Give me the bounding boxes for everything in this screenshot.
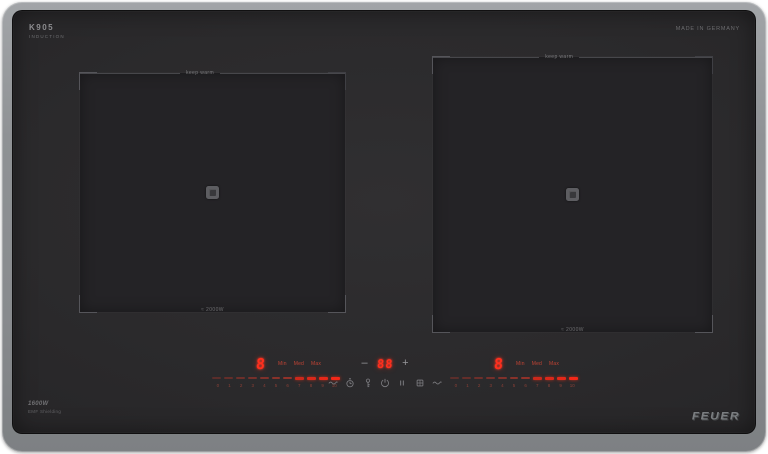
power-level-1[interactable]: 1 [462, 383, 474, 388]
cooktop-product-image: K905 INDUCTION MADE IN GERMANY keep warm… [0, 0, 768, 454]
zone-top-guide: keep warm [80, 70, 345, 76]
power-dash-7 [533, 377, 542, 380]
power-slider-touch-scale[interactable]: 012345678910 [450, 383, 578, 388]
power-level-5[interactable]: 5 [508, 383, 520, 388]
left-power-display: 8 [255, 355, 265, 373]
power-level-7[interactable]: 7 [531, 383, 543, 388]
made-in-germany-label: MADE IN GERMANY [676, 26, 740, 32]
power-slider-indicator [450, 376, 578, 380]
power-level-0[interactable]: 0 [450, 383, 462, 388]
zone-power-rating: ≈ 2000W [433, 327, 712, 333]
model-subtitle: INDUCTION [29, 34, 65, 39]
min-label: Min [516, 361, 525, 367]
power-dash-8 [545, 377, 554, 380]
cooking-zone-left: keep warm ≈ 2000W [80, 73, 345, 312]
power-scale-labels: Min Med Max [278, 361, 321, 367]
power-dash-6 [521, 377, 530, 379]
power-dash-3 [248, 377, 257, 379]
power-level-4[interactable]: 4 [259, 383, 271, 388]
cooking-zone-right: keep warm ≈ 2000W [433, 57, 712, 332]
pause-icon[interactable] [397, 378, 407, 388]
max-label: Max [549, 361, 559, 367]
keep-warm-icon[interactable] [328, 378, 338, 388]
center-controls: – 88 + [326, 356, 444, 388]
glass-surface: K905 INDUCTION MADE IN GERMANY keep warm… [12, 10, 756, 434]
power-level-3[interactable]: 3 [247, 383, 259, 388]
child-lock-icon[interactable] [363, 378, 373, 388]
zone-function-label: keep warm [180, 70, 220, 76]
power-dash-0 [212, 377, 221, 379]
power-level-3[interactable]: 3 [485, 383, 497, 388]
power-level-6[interactable]: 6 [520, 383, 532, 388]
power-level-4[interactable]: 4 [497, 383, 509, 388]
guide-line [220, 73, 345, 74]
power-slider-touch-scale[interactable]: 012345678910 [212, 383, 340, 388]
zone-function-label: keep warm [539, 54, 579, 60]
power-level-9[interactable]: 9 [555, 383, 567, 388]
feuer-brand-logo: FEUER [692, 410, 740, 423]
left-zone-controls: 8 Min Med Max 012345678910 [212, 355, 340, 388]
power-dash-9 [557, 377, 566, 380]
model-number: K905 [29, 23, 65, 32]
timer-display: 88 [376, 357, 393, 371]
zone-center-mark-icon [566, 188, 579, 201]
med-label: Med [294, 361, 304, 367]
function-key-row [326, 378, 444, 388]
power-dash-3 [486, 377, 495, 379]
guide-line [80, 73, 180, 74]
front-label-line2: EMF Shielding [28, 409, 61, 415]
power-level-2[interactable]: 2 [473, 383, 485, 388]
zone-top-guide: keep warm [433, 54, 712, 60]
power-dash-6 [283, 377, 292, 379]
power-dash-4 [260, 377, 269, 379]
power-level-0[interactable]: 0 [212, 383, 224, 388]
max-label: Max [311, 361, 321, 367]
power-dash-1 [224, 377, 233, 379]
power-dash-7 [295, 377, 304, 380]
right-power-display: 8 [493, 355, 503, 373]
boost-icon[interactable] [415, 378, 425, 388]
front-edge-label: 1600W EMF Shielding [28, 401, 61, 415]
power-dash-5 [510, 377, 519, 379]
model-mark: K905 INDUCTION [29, 23, 65, 39]
power-level-7[interactable]: 7 [293, 383, 305, 388]
med-label: Med [532, 361, 542, 367]
power-level-6[interactable]: 6 [282, 383, 294, 388]
guide-line [433, 57, 539, 58]
power-level-10[interactable]: 10 [566, 383, 578, 388]
right-zone-controls: 8 Min Med Max 012345678910 [450, 355, 578, 388]
timer-icon[interactable] [345, 378, 355, 388]
power-dash-4 [498, 377, 507, 379]
keep-warm-right-icon[interactable] [432, 378, 442, 388]
power-dash-0 [450, 377, 459, 379]
power-level-2[interactable]: 2 [235, 383, 247, 388]
power-dash-10 [569, 377, 578, 380]
power-level-5[interactable]: 5 [270, 383, 282, 388]
front-label-line1: 1600W [28, 401, 61, 409]
power-level-1[interactable]: 1 [224, 383, 236, 388]
zone-center-mark-icon [206, 186, 219, 199]
power-level-8[interactable]: 8 [305, 383, 317, 388]
power-slider-indicator [212, 376, 340, 380]
timer-minus-button[interactable]: – [361, 358, 367, 369]
power-dash-1 [462, 377, 471, 379]
power-dash-2 [236, 377, 245, 379]
power-icon[interactable] [380, 378, 390, 388]
power-dash-2 [474, 377, 483, 379]
power-scale-labels: Min Med Max [516, 361, 559, 367]
power-dash-8 [307, 377, 316, 380]
power-dash-5 [272, 377, 281, 379]
power-level-8[interactable]: 8 [543, 383, 555, 388]
min-label: Min [278, 361, 287, 367]
zone-power-rating: ≈ 2000W [80, 307, 345, 313]
timer-plus-button[interactable]: + [402, 358, 408, 369]
guide-line [579, 57, 712, 58]
